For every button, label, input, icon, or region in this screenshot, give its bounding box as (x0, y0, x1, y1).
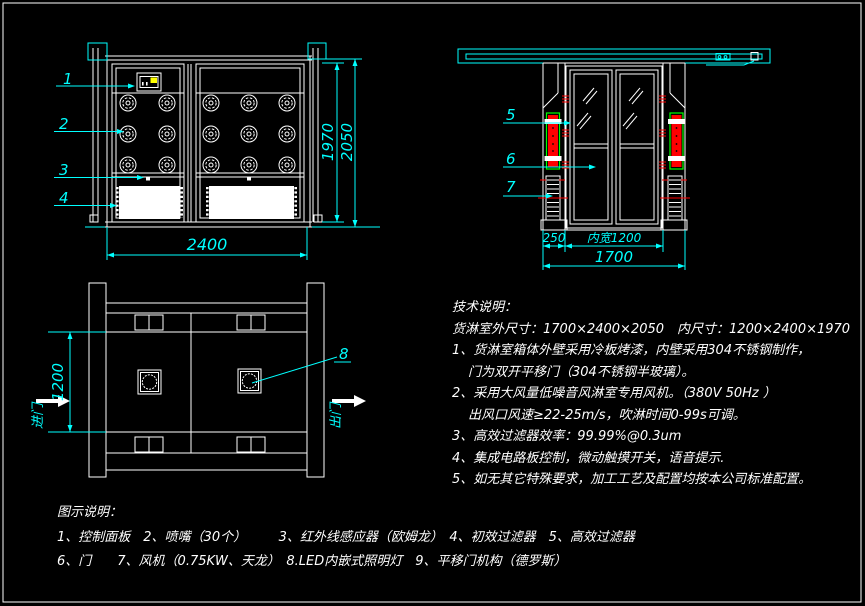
tech-notes-line: 1、货淋室箱体外壁采用冷板烤漆，内壁采用304不锈钢制作， (452, 340, 860, 362)
tech-notes: 技术说明： 货淋室外尺寸：1700×2400×2050 内尺寸：1200×240… (452, 297, 860, 491)
nozzle-grid (120, 95, 295, 173)
tech-notes-line: 5、如无其它特殊要求，加工工艺及配置均按本公司标准配置。 (452, 469, 860, 491)
hepa-filter-right (668, 113, 685, 169)
side-view-structure (541, 63, 687, 230)
glass-hatch (577, 88, 643, 129)
door-left (570, 70, 612, 224)
break-marks (538, 96, 690, 198)
primary-filter-right (207, 186, 295, 219)
cad-drawing-canvas: 1 2 3 4 2400 1970 2050 (0, 0, 865, 606)
callout-5: 5 (506, 106, 516, 124)
tech-notes-title: 技术说明： (452, 297, 860, 319)
led-light-left (138, 370, 161, 394)
tech-notes-line: 门为双开平移门（304不锈钢半玻璃）。 (452, 362, 860, 384)
hepa-filter-left (545, 113, 562, 169)
plan-view-callouts: 8 (252, 345, 351, 383)
legend-title: 图示说明： (57, 501, 817, 526)
dim-total-width: 1700 (595, 248, 633, 266)
tech-notes-line: 3、高效过滤器效率：99.99%@0.3um (452, 426, 860, 448)
indicator-light (151, 78, 158, 84)
callout-3: 3 (59, 161, 69, 179)
dim-inner-depth: 1200 (49, 363, 67, 401)
infrared-sensor-left (146, 178, 150, 181)
dim-inner-width: 内宽1200 (587, 231, 642, 245)
legend-line: 1、控制面板 2、喷嘴（30个） 3、红外线感应器（欧姆龙） 4、初效过滤器 5… (57, 526, 817, 551)
tech-notes-line: 出风口风速≥22-25m/s，吹淋时间0-99s可调。 (452, 405, 860, 427)
tech-notes-line: 货淋室外尺寸：1700×2400×2050 内尺寸：1200×2400×1970 (452, 319, 860, 341)
dim-left-section: 250 (543, 231, 566, 245)
callout-1: 1 (63, 70, 73, 88)
dim-width: 2400 (187, 235, 228, 254)
tech-notes-line: 4、集成电路板控制，微动触摸开关，语音提示. (452, 448, 860, 470)
legend-line: 6、门 7、风机（0.75KW、天龙） 8.LED内嵌式照明灯 9、平移门机构（… (57, 550, 817, 575)
legend: 图示说明： 1、控制面板 2、喷嘴（30个） 3、红外线感应器（欧姆龙） 4、初… (57, 501, 817, 575)
control-panel (137, 73, 161, 91)
callout-4: 4 (59, 189, 69, 207)
plan-view: 进门 出门 1200 8 (31, 283, 366, 477)
tech-notes-line: 2、采用大风量低噪音风淋室专用风机。（380V 50Hz ） (452, 383, 860, 405)
front-view-dimensions: 2400 1970 2050 (107, 59, 362, 260)
exit-label: 出门 (329, 401, 344, 429)
side-view-dimensions: 250 内宽1200 1700 (543, 230, 685, 270)
door-wall-right (307, 283, 324, 477)
callout-6: 6 (506, 150, 516, 168)
callout-8: 8 (339, 345, 349, 363)
dim-inner-height: 1970 (319, 123, 337, 161)
callout-2: 2 (59, 115, 69, 133)
infrared-sensor-right (247, 178, 251, 181)
callout-7: 7 (506, 178, 516, 196)
primary-filter-left (117, 186, 181, 219)
side-view: 5 6 7 250 内宽1200 1700 (458, 49, 770, 270)
door-wall-left (89, 283, 106, 477)
top-bracket-right (308, 43, 326, 59)
plan-view-structure (89, 283, 324, 477)
dim-outer-height: 2050 (338, 123, 356, 161)
front-view: 1 2 3 4 2400 1970 2050 (54, 43, 380, 260)
entry-label: 进门 (31, 401, 46, 429)
plan-view-dimensions: 1200 (48, 332, 106, 432)
door-right (616, 70, 658, 224)
